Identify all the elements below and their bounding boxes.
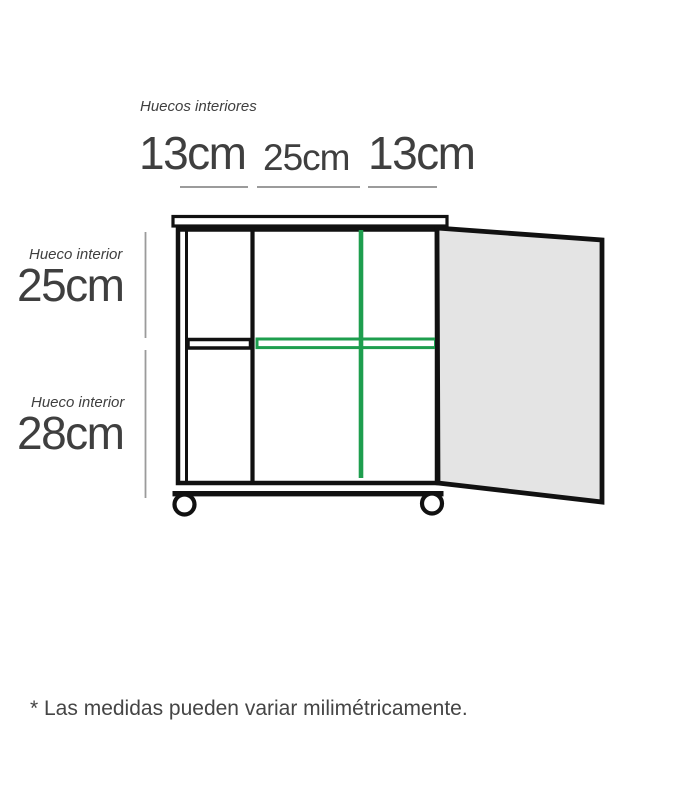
caster-right — [422, 494, 442, 514]
left-shelf — [188, 340, 251, 349]
cabinet-diagram — [0, 0, 700, 800]
cabinet-body — [178, 230, 437, 484]
open-door — [437, 228, 602, 502]
cabinet-top-panel — [173, 217, 447, 227]
cabinet-base — [173, 491, 444, 496]
product-dimension-page: Huecos interiores 13cm 25cm 13cm Hueco i… — [0, 0, 700, 800]
caster-left — [175, 495, 195, 515]
